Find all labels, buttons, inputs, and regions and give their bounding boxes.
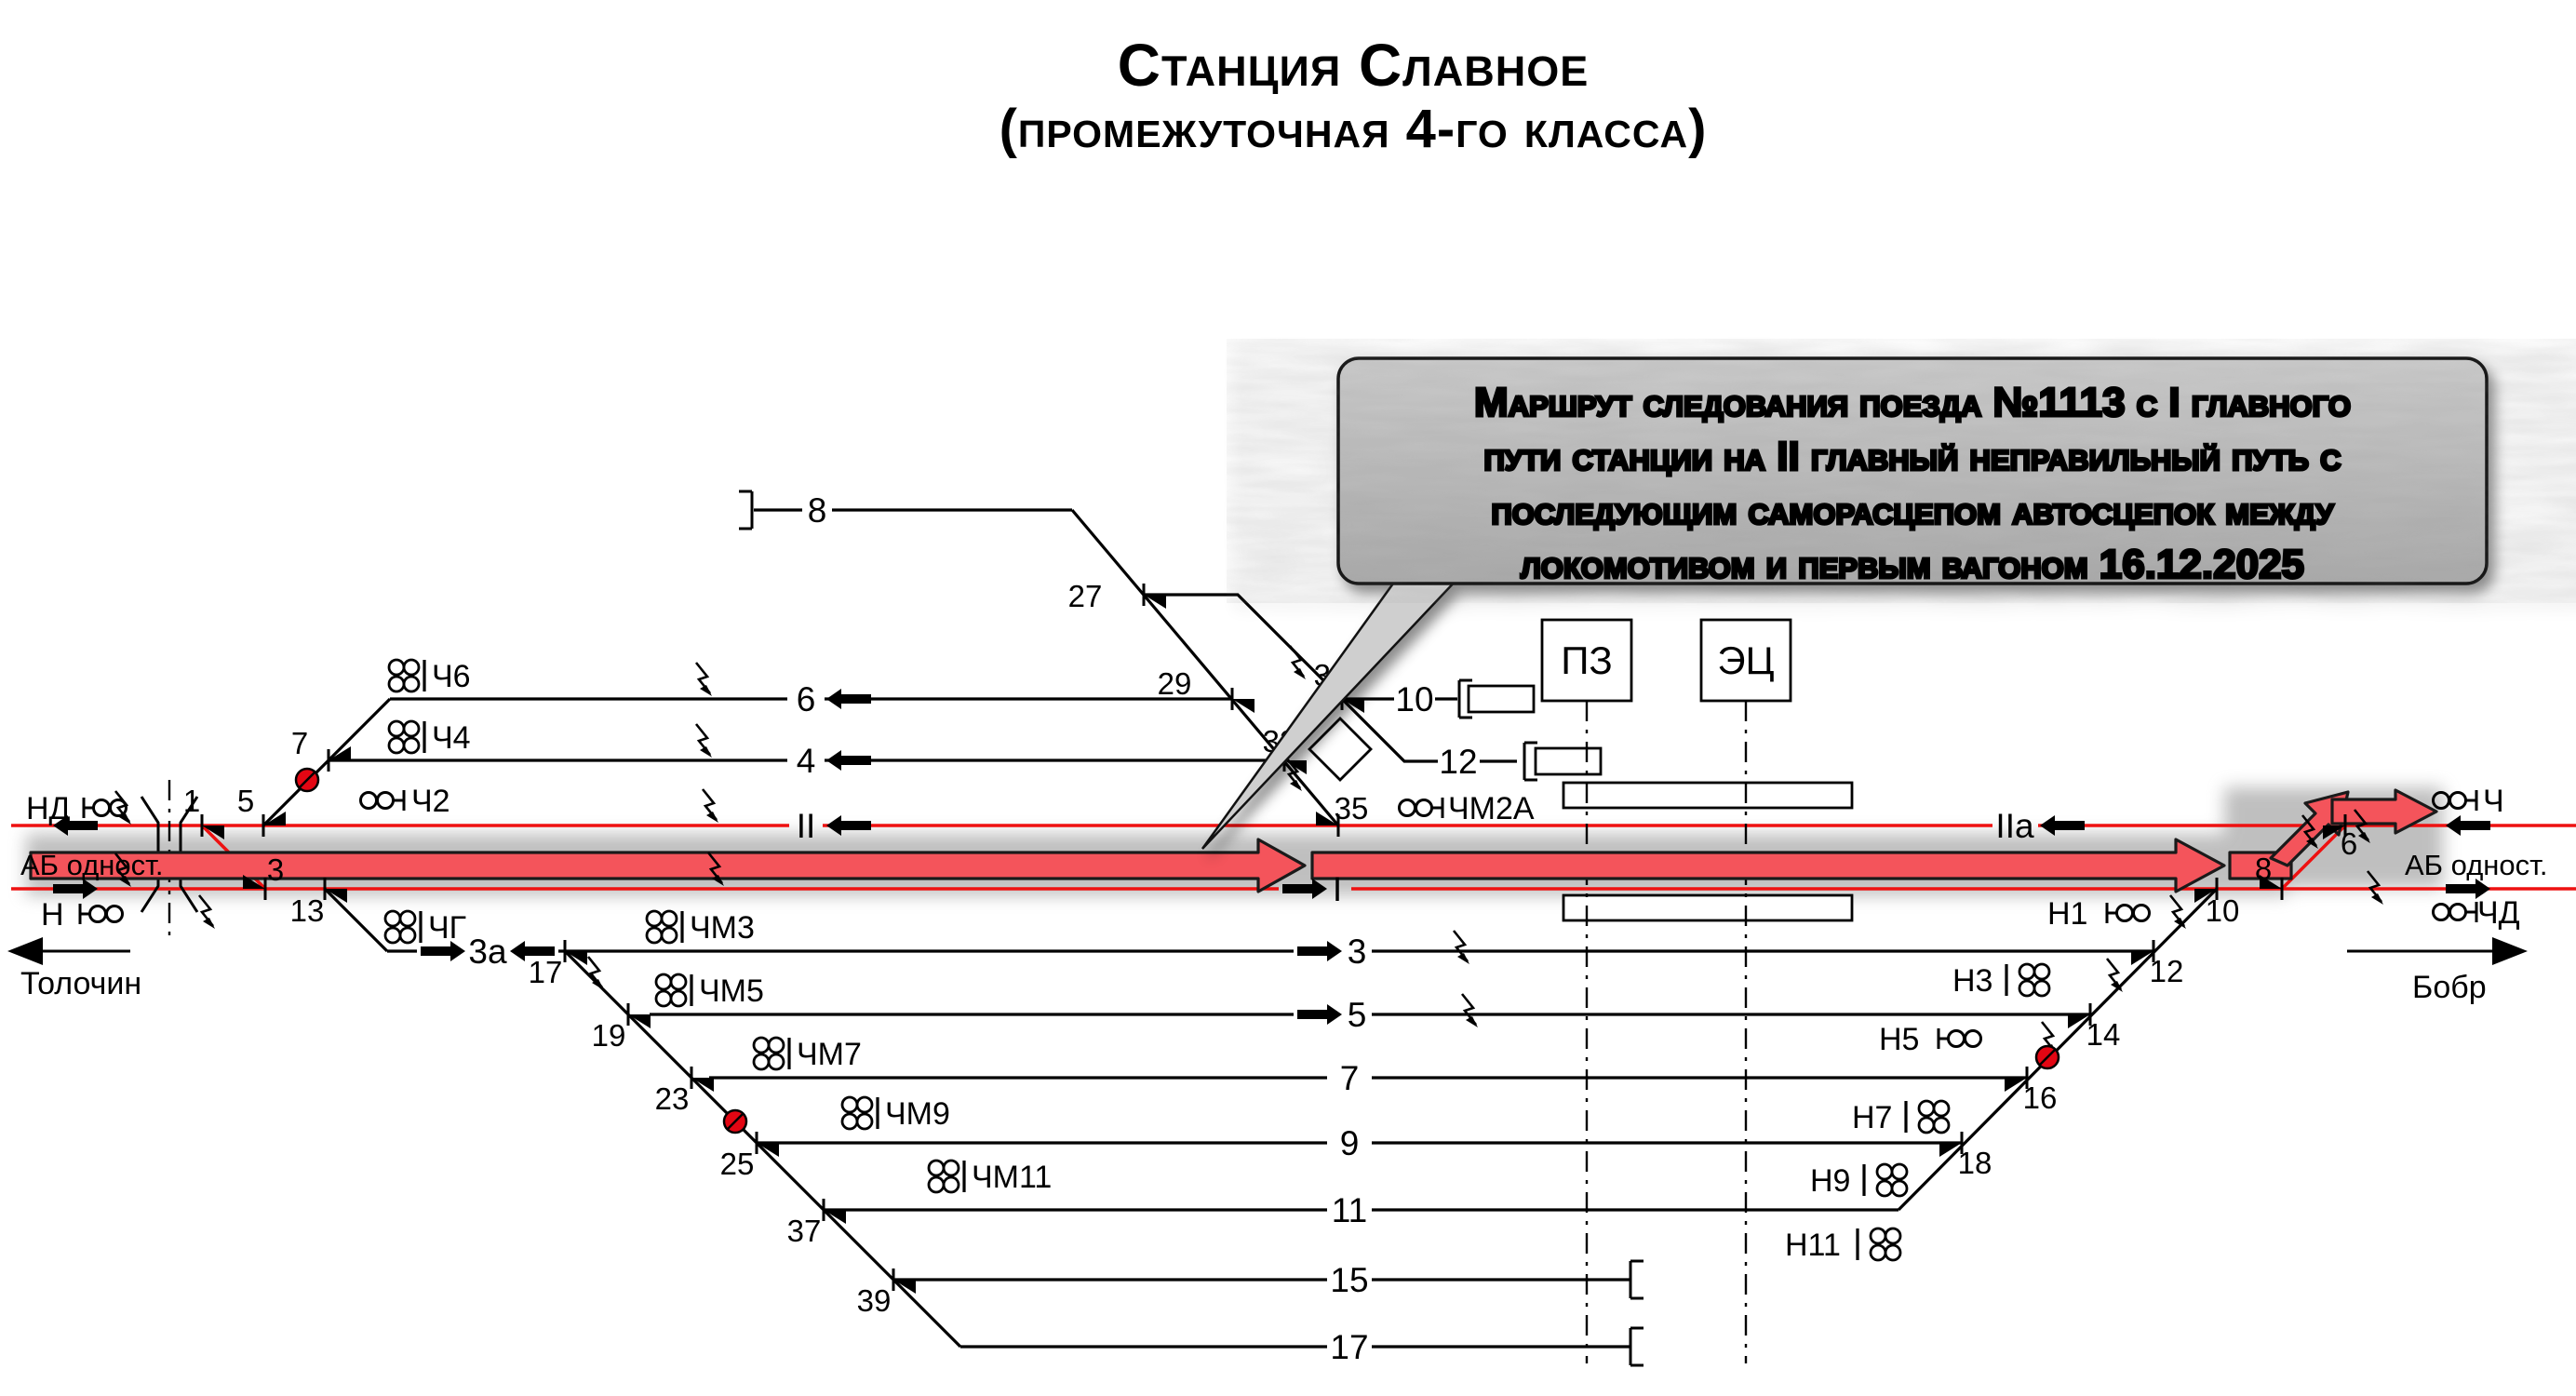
- svg-text:Н: Н: [41, 897, 64, 933]
- svg-text:10: 10: [2206, 893, 2240, 928]
- track-label-12: 12: [1439, 743, 1477, 781]
- callout-text-line3: последующим саморасцепом автосцепок межд…: [1491, 488, 2334, 533]
- svg-text:5: 5: [237, 784, 254, 818]
- svg-text:ЧГ: ЧГ: [428, 910, 466, 946]
- switch-29: 29: [1158, 666, 1254, 713]
- svg-text:35: 35: [1335, 791, 1369, 826]
- svg-text:17: 17: [529, 955, 563, 989]
- platform-upper: [1563, 783, 1852, 808]
- track-label-3: 3: [1348, 933, 1367, 971]
- ramp-track10: [1469, 686, 1534, 712]
- track-label-15: 15: [1330, 1261, 1368, 1299]
- dwarf-signal-Н5: Н5: [1879, 1022, 1981, 1057]
- buffer-track15: [1630, 1261, 1644, 1298]
- callout-text-line4: локомотивом и первым вагоном 16.12.2025: [1521, 542, 2304, 587]
- diamond-structure: [1309, 718, 1371, 780]
- svg-text:ЧМ2А: ЧМ2А: [1448, 791, 1535, 826]
- track-label-5: 5: [1348, 996, 1367, 1034]
- route-callout: Маршрут следования поезда №1113 с I глав…: [1202, 358, 2487, 849]
- direction-arrow-left-2: [826, 750, 871, 771]
- red-circle-signal-2: [724, 1110, 746, 1133]
- callout-text-line1: Маршрут следования поезда №1113 с I глав…: [1474, 380, 2351, 425]
- mast-signal-Ч6: Ч6: [389, 659, 471, 694]
- red-circle-signal-3: [2036, 1046, 2059, 1068]
- mast-signal-ЧМ11: ЧМ11: [929, 1160, 1052, 1195]
- building-ec-label: ЭЦ: [1717, 638, 1774, 682]
- svg-text:ЧМ5: ЧМ5: [699, 973, 764, 1009]
- station-diagram-page: 1531371719232537392729313335121416181068…: [0, 0, 2576, 1396]
- dwarf-signal-ЧМ2А: ЧМ2А: [1400, 791, 1535, 826]
- mast-signal-ЧМ5: ЧМ5: [656, 973, 764, 1009]
- mast-signal-ЧМ7: ЧМ7: [754, 1037, 862, 1072]
- buffer-stops: [739, 491, 1644, 1365]
- mast-signal-ЧГ: ЧГ: [385, 910, 466, 946]
- svg-text:Н3: Н3: [1952, 963, 1992, 999]
- svg-text:27: 27: [1068, 579, 1103, 613]
- svg-text:13: 13: [290, 893, 325, 928]
- direction-arrow-right-10: [1297, 1004, 1342, 1025]
- svg-text:Н5: Н5: [1879, 1022, 1919, 1057]
- direction-arrow-left-1: [826, 689, 871, 709]
- svg-text:8: 8: [2255, 852, 2272, 886]
- svg-text:Н7: Н7: [1852, 1100, 1892, 1135]
- destination-left: Толочин: [20, 966, 141, 1001]
- callout-text-line2: пути станции на II главный неправильный …: [1483, 434, 2341, 479]
- arrow-to-bobr: [2492, 937, 2528, 965]
- mast-signal-ЧМ3: ЧМ3: [647, 910, 755, 946]
- mast-signal-Н9: Н9: [1810, 1163, 1907, 1199]
- svg-text:ЧМ7: ЧМ7: [797, 1037, 862, 1072]
- track-label-4: 4: [797, 742, 816, 780]
- svg-text:1: 1: [183, 784, 200, 818]
- track-label-3a: 3a: [468, 933, 507, 971]
- mast-signal-Ч4: Ч4: [389, 720, 471, 756]
- dwarf-signal-Ч: Ч: [2434, 784, 2504, 819]
- arrow-to-tolochin: [7, 937, 43, 965]
- ab-label-left: АБ одност.: [20, 849, 164, 881]
- track-label-11: 11: [1332, 1191, 1367, 1229]
- svg-text:ЧМ9: ЧМ9: [885, 1096, 950, 1132]
- track-label-9: 9: [1340, 1124, 1360, 1162]
- buffer-track8: [739, 491, 752, 529]
- ab-label-right: АБ одност.: [2405, 849, 2548, 881]
- building-pz-label: ПЗ: [1561, 638, 1613, 682]
- svg-text:29: 29: [1158, 666, 1192, 701]
- mast-signal-Н11: Н11: [1785, 1228, 1900, 1263]
- track-label-IIa: IIa: [1995, 807, 2034, 845]
- direction-arrow-right-9: [1297, 941, 1342, 961]
- svg-text:ЧМ3: ЧМ3: [690, 910, 755, 946]
- switch-1: 1: [183, 784, 224, 839]
- track-label-II: II: [797, 807, 816, 845]
- ramp-track12: [1536, 748, 1601, 774]
- destination-right: Бобр: [2412, 970, 2487, 1005]
- station-scheme-svg: 1531371719232537392729313335121416181068…: [0, 0, 2576, 1396]
- track-label-17: 17: [1330, 1328, 1368, 1366]
- direction-arrow-left-4: [2040, 815, 2085, 836]
- svg-text:7: 7: [291, 726, 308, 760]
- svg-text:25: 25: [720, 1147, 755, 1181]
- dwarf-signal-Н: Н: [41, 897, 123, 933]
- slope-27-35: [1072, 510, 1338, 826]
- mast-signal-Н3: Н3: [1952, 963, 2049, 999]
- svg-text:39: 39: [857, 1283, 892, 1318]
- svg-text:Ч: Ч: [2483, 784, 2504, 819]
- svg-text:Н11: Н11: [1785, 1228, 1841, 1263]
- platform-lower: [1563, 895, 1852, 920]
- track-label-6: 6: [797, 680, 816, 718]
- track-label-8: 8: [808, 491, 827, 530]
- switch-27: 27: [1068, 579, 1166, 613]
- svg-text:19: 19: [592, 1018, 626, 1053]
- dwarf-signal-ЧД: ЧД: [2434, 895, 2520, 931]
- switch-35: 35: [1316, 791, 1368, 837]
- side-tracks: [263, 510, 2217, 1347]
- mast-signal-ЧМ9: ЧМ9: [842, 1096, 950, 1132]
- switch-18: 18: [1939, 1132, 1992, 1180]
- track-label-10: 10: [1395, 680, 1433, 718]
- svg-text:6: 6: [2341, 826, 2357, 861]
- svg-text:14: 14: [2086, 1017, 2121, 1052]
- dwarf-signal-Ч2: Ч2: [361, 784, 450, 819]
- svg-text:Н1: Н1: [2047, 896, 2087, 932]
- direction-arrow-left-3: [826, 815, 871, 836]
- svg-text:18: 18: [1958, 1146, 1992, 1180]
- slope-17-39: [565, 951, 960, 1347]
- svg-text:Ч6: Ч6: [432, 659, 471, 694]
- mast-signal-Н7: Н7: [1852, 1100, 1949, 1135]
- svg-text:16: 16: [2023, 1081, 2058, 1115]
- svg-text:23: 23: [655, 1081, 690, 1116]
- svg-text:Н9: Н9: [1810, 1163, 1850, 1199]
- svg-text:Ч2: Ч2: [411, 784, 450, 819]
- svg-text:ЧМ11: ЧМ11: [972, 1160, 1052, 1195]
- svg-text:Ч4: Ч4: [432, 720, 471, 756]
- page-title-line1: Станция Славное: [1118, 32, 1590, 99]
- switch-16: 16: [2005, 1067, 2057, 1115]
- track-label-7: 7: [1340, 1059, 1360, 1097]
- switches-layer: 1531371719232537392729313335121416181068: [183, 579, 2357, 1318]
- svg-text:3: 3: [267, 852, 284, 887]
- svg-text:37: 37: [787, 1214, 822, 1248]
- svg-text:12: 12: [2150, 954, 2184, 988]
- page-title-line2: (промежуточная 4-го класса): [1000, 99, 1708, 159]
- slope-10-18: [1898, 889, 2217, 1210]
- track-label-I: I: [1333, 870, 1342, 908]
- dwarf-signal-Н1: Н1: [2047, 896, 2150, 932]
- svg-text:ЧД: ЧД: [2477, 895, 2520, 931]
- buffer-track17: [1630, 1328, 1644, 1365]
- red-circle-signal-1: [296, 769, 318, 791]
